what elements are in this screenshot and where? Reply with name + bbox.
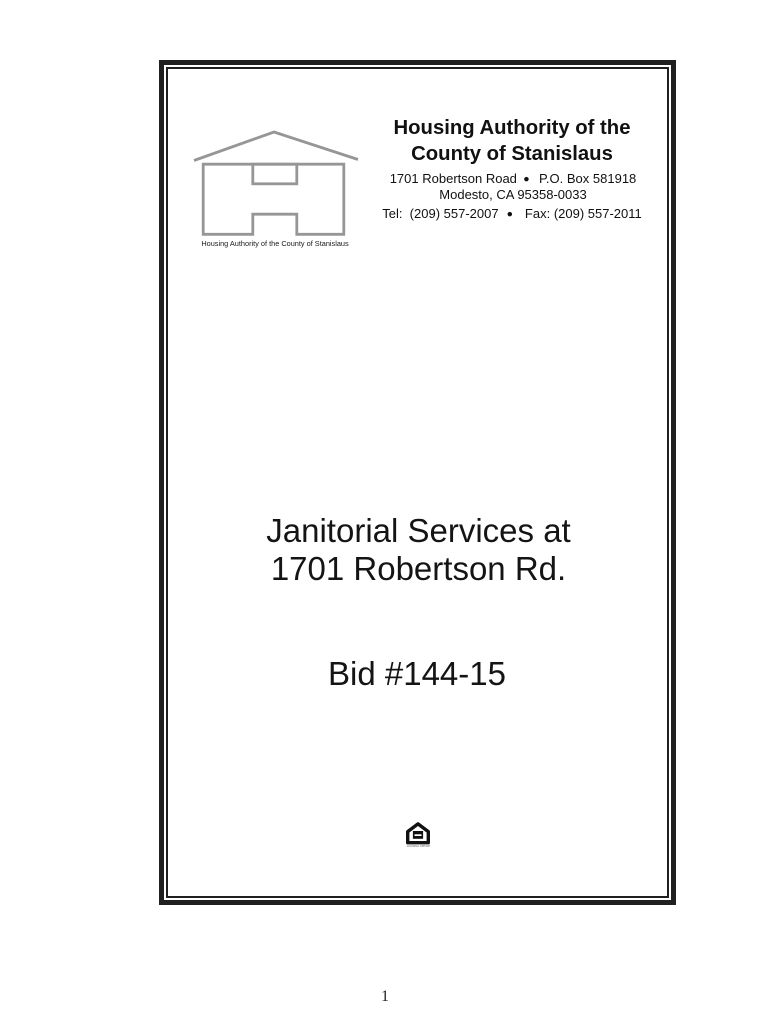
svg-text:EQUAL HOUSING OPPORTUNITY: EQUAL HOUSING OPPORTUNITY (406, 844, 430, 848)
